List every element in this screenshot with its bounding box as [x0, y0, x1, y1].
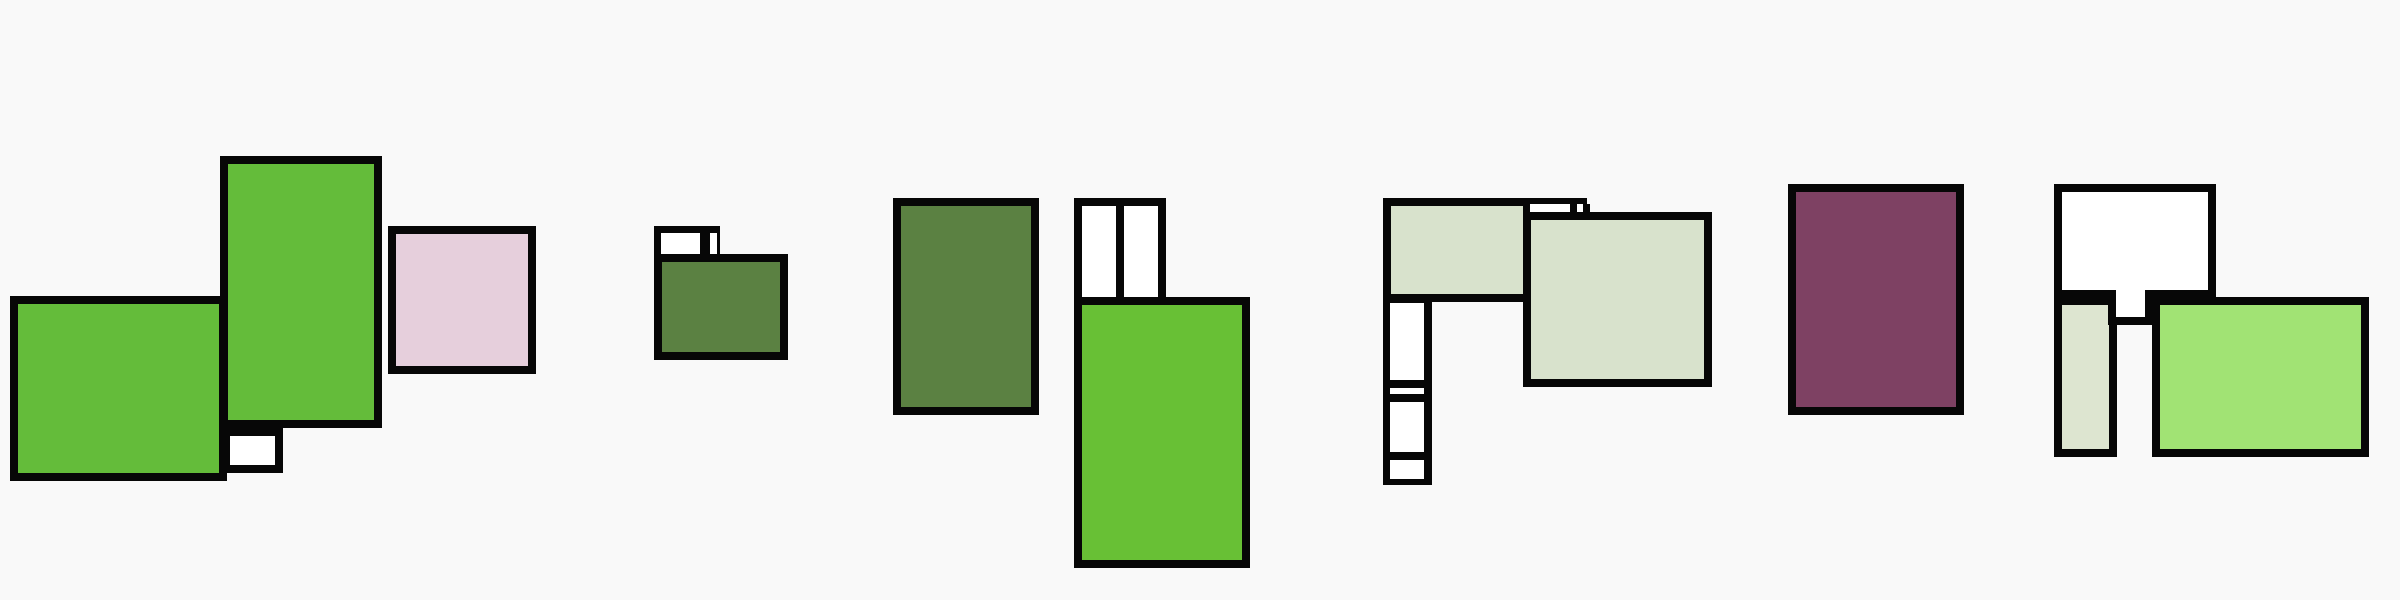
- canvas: [0, 0, 2400, 600]
- cluster6-light-green-block: [2152, 297, 2369, 457]
- cluster2-olive-block: [654, 254, 788, 360]
- cluster3-olive-block: [893, 198, 1039, 415]
- cluster4-column-cell-2: [1390, 402, 1424, 452]
- cluster6-white-block: [2054, 184, 2216, 298]
- cluster1-white-small-block: [222, 428, 283, 473]
- cluster4-square-block: [1523, 212, 1712, 387]
- cluster3-pair-cell-right: [1124, 206, 1158, 304]
- cluster4-sliver-cell-2: [1577, 204, 1583, 212]
- cluster3-pair-cell-left: [1082, 206, 1116, 304]
- cluster4-column-cell-1: [1390, 303, 1424, 380]
- cluster4-column-cell-3: [1390, 460, 1424, 479]
- cluster1-green-left-block: [10, 296, 227, 481]
- cluster1-pink-block: [388, 226, 536, 374]
- cluster3-green-big-block: [1074, 297, 1250, 568]
- cluster6-white-tab: [2108, 290, 2153, 325]
- cluster4-sliver-cell-1: [1530, 204, 1570, 212]
- cluster5-purple-block: [1788, 184, 1964, 415]
- cluster4-column-strip: [1390, 388, 1424, 394]
- cluster1-green-tall-block: [220, 156, 382, 428]
